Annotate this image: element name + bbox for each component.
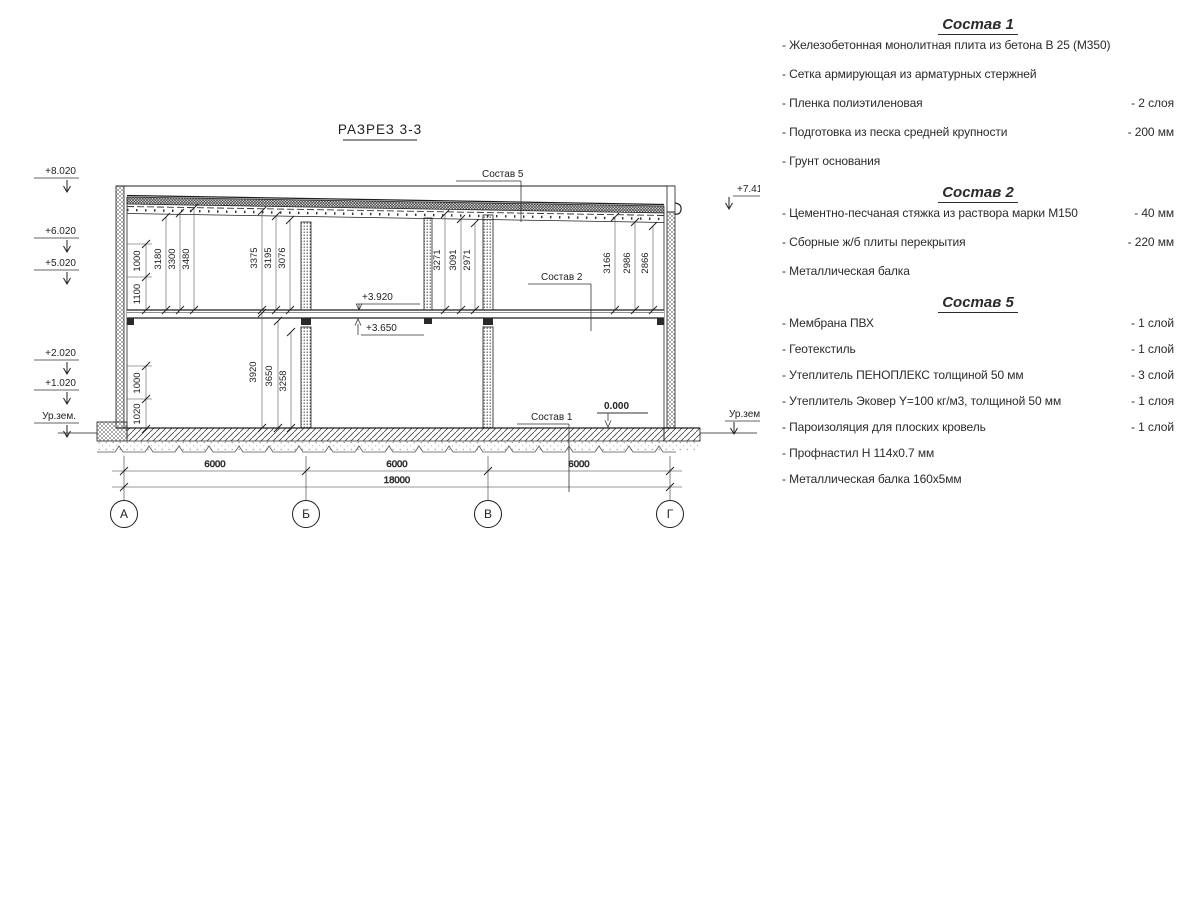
section-drawing: РАЗРЕЗ 3-3 (0, 0, 760, 560)
first-floor-columns (301, 327, 493, 428)
dim-label: 3076 (277, 247, 288, 268)
spec-item: - Сборные ж/б плиты перекрытия- 220 мм (782, 236, 1174, 249)
grid-letter: В (484, 507, 492, 521)
spec-item: - Сетка армирующая из арматурных стержне… (782, 68, 1174, 81)
dim-label: 3920 (248, 361, 259, 382)
spec-item: - Подготовка из песка средней крупности-… (782, 126, 1174, 139)
dim-label: 1000 (132, 250, 143, 271)
right-footing (664, 428, 700, 441)
dim-label: 2866 (640, 252, 651, 273)
spec-title-text: Состав 1 (938, 16, 1018, 35)
ground-level-label: Ур.зем. (42, 411, 76, 422)
dim-label: 3258 (278, 370, 289, 391)
leader-sostav1: Состав 1 (531, 412, 573, 423)
spec-block-sostav-5: Состав 5 - Мембрана ПВХ- 1 слой - Геотек… (782, 294, 1174, 486)
dim-label: 3166 (602, 252, 613, 273)
level-zero: 0.000 (604, 401, 629, 412)
roof-assembly (127, 196, 681, 223)
grid-letter: А (120, 507, 128, 521)
elev-label: +2.020 (45, 348, 76, 359)
span-dim: 6000 (204, 459, 225, 470)
spec-title-text: Состав 5 (938, 294, 1018, 313)
spec-item: - Пароизоляция для плоских кровель- 1 сл… (782, 421, 1174, 434)
spec-item: - Профнастил Н 114х0.7 мм (782, 447, 1174, 460)
specification-panel: Состав 1 - Железобетонная монолитная пли… (782, 16, 1174, 499)
grid-bubbles: А Б В Г (111, 501, 684, 528)
level-3650: +3.650 (366, 323, 397, 334)
elev-label: +8.020 (45, 166, 76, 177)
spec-title-text: Состав 2 (938, 184, 1018, 203)
spec-item: - Железобетонная монолитная плита из бет… (782, 39, 1174, 52)
leader-sostav5: Состав 5 (482, 169, 524, 180)
dim-label: 2971 (462, 249, 473, 270)
dim-label: 3480 (181, 248, 192, 269)
leader-sostav2: Состав 2 (541, 272, 583, 283)
dim-label: 3271 (432, 249, 443, 270)
dim-label: 1100 (132, 284, 143, 304)
total-dim: 18000 (384, 475, 410, 486)
dim-label: 3650 (264, 365, 275, 386)
dim-label: 3195 (263, 247, 274, 268)
grid-letter: Г (667, 507, 674, 521)
left-footing (97, 422, 127, 441)
elev-label: +7.410 (737, 184, 760, 195)
elev-label: +1.020 (45, 378, 76, 389)
span-dim: 6000 (386, 459, 407, 470)
elev-label: +5.020 (45, 258, 76, 269)
dim-label: 1020 (132, 403, 143, 424)
roof-drip-edge (675, 203, 681, 214)
dim-label: 2986 (622, 252, 633, 273)
spec-block-sostav-2: Состав 2 - Цементно-песчаная стяжка из р… (782, 184, 1174, 278)
grid-letter: Б (302, 507, 310, 521)
spec-item: - Грунт основания (782, 155, 1174, 168)
dim-label: 3375 (249, 247, 260, 268)
drawing-title: РАЗРЕЗ 3-3 (338, 122, 422, 140)
elevation-marks-right: +7.410 Ур.зем. (725, 184, 760, 434)
span-dim: 6000 (568, 459, 589, 470)
spec-item: - Пленка полиэтиленовая- 2 слоя (782, 97, 1174, 110)
spec-title: Состав 2 (782, 184, 1174, 201)
ground-level-label: Ур.зем. (729, 409, 760, 420)
dim-label: 3180 (153, 248, 164, 269)
right-wall (664, 186, 675, 428)
elevation-marks-left: +8.020 +6.020 +5.020 +2.020 +1.020 Ур.зе… (34, 166, 79, 437)
ground-slab (58, 422, 757, 452)
sand-base (97, 441, 700, 452)
spec-item: - Металлическая балка 160х5мм (782, 473, 1174, 486)
level-3920: +3.920 (362, 292, 393, 303)
dims-first-floor: 1000 1020 3920 3650 3258 (127, 309, 295, 433)
spec-title: Состав 1 (782, 16, 1174, 33)
spec-block-sostav-1: Состав 1 - Железобетонная монолитная пли… (782, 16, 1174, 168)
spec-item: - Металлическая балка (782, 265, 1174, 278)
spec-item: - Утеплитель Эковер Y=100 кг/м3, толщино… (782, 395, 1174, 408)
axis-dimensions: 6000 6000 6000 18000 (112, 456, 682, 500)
section-title: РАЗРЕЗ 3-3 (338, 122, 422, 137)
spec-item: - Геотекстиль- 1 слой (782, 343, 1174, 356)
spec-title: Состав 5 (782, 294, 1174, 311)
elev-label: +6.020 (45, 226, 76, 237)
dim-label: 3300 (167, 248, 178, 269)
spec-item: - Мембрана ПВХ- 1 слой (782, 317, 1174, 330)
dim-label: 1000 (132, 372, 143, 393)
sheet: РАЗРЕЗ 3-3 (0, 0, 1200, 900)
spec-item: - Цементно-песчаная стяжка из раствора м… (782, 207, 1174, 220)
dim-label: 3091 (448, 249, 459, 270)
spec-item: - Утеплитель ПЕНОПЛЕКС толщиной 50 мм- 3… (782, 369, 1174, 382)
